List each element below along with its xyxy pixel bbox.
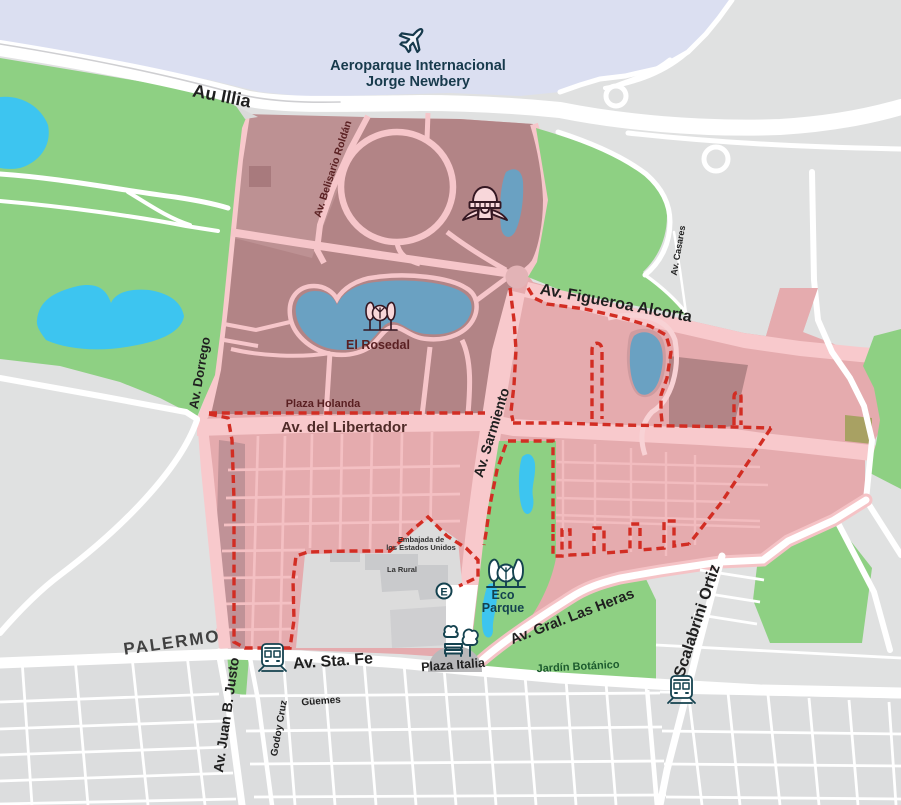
svg-text:El Rosedal: El Rosedal [346,338,410,352]
svg-text:Plaza Holanda: Plaza Holanda [286,398,361,410]
svg-text:Jorge Newbery: Jorge Newbery [366,74,470,90]
svg-text:Aeroparque Internacional: Aeroparque Internacional [330,58,506,74]
svg-text:Eco: Eco [492,588,515,602]
svg-text:Parque: Parque [482,601,524,615]
svg-text:Av. del Libertador: Av. del Libertador [281,419,407,436]
svg-text:E: E [440,587,447,599]
svg-text:La Rural: La Rural [387,565,417,574]
svg-text:los Estados Unidos: los Estados Unidos [386,543,456,552]
